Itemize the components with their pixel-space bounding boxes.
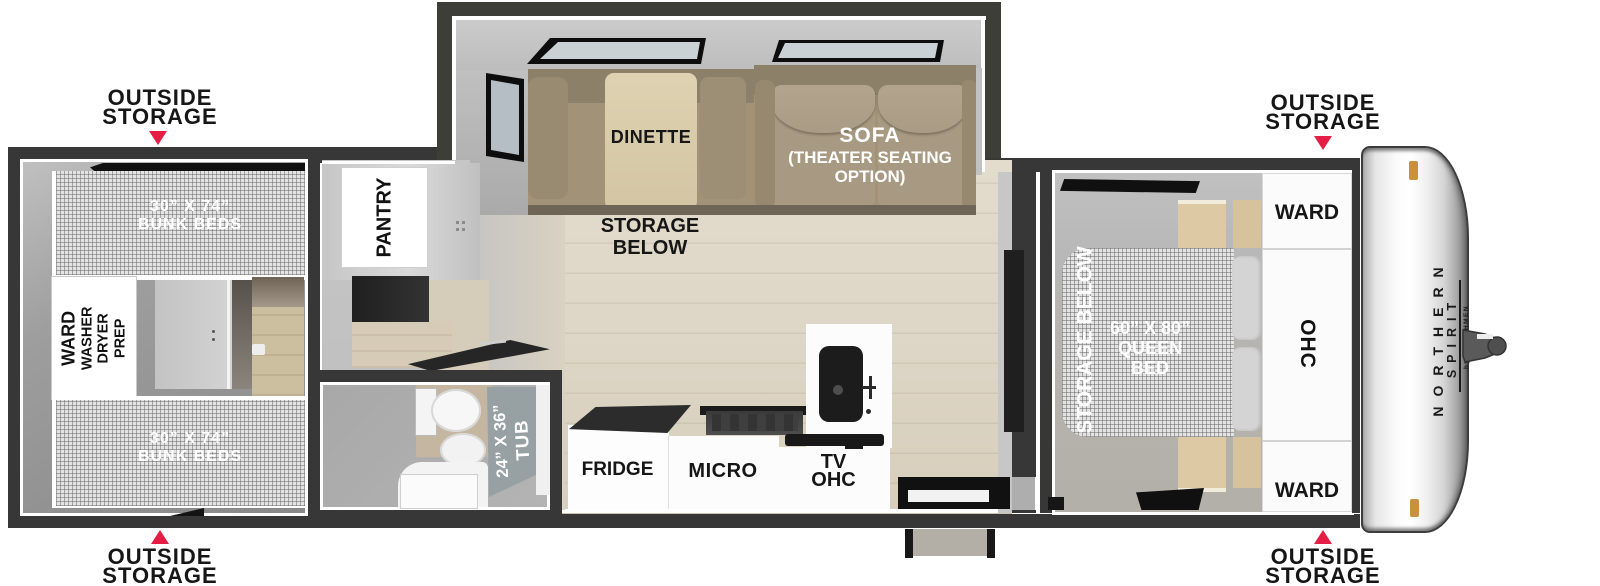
svg-text:NORTHERN: NORTHERN: [1430, 257, 1446, 416]
